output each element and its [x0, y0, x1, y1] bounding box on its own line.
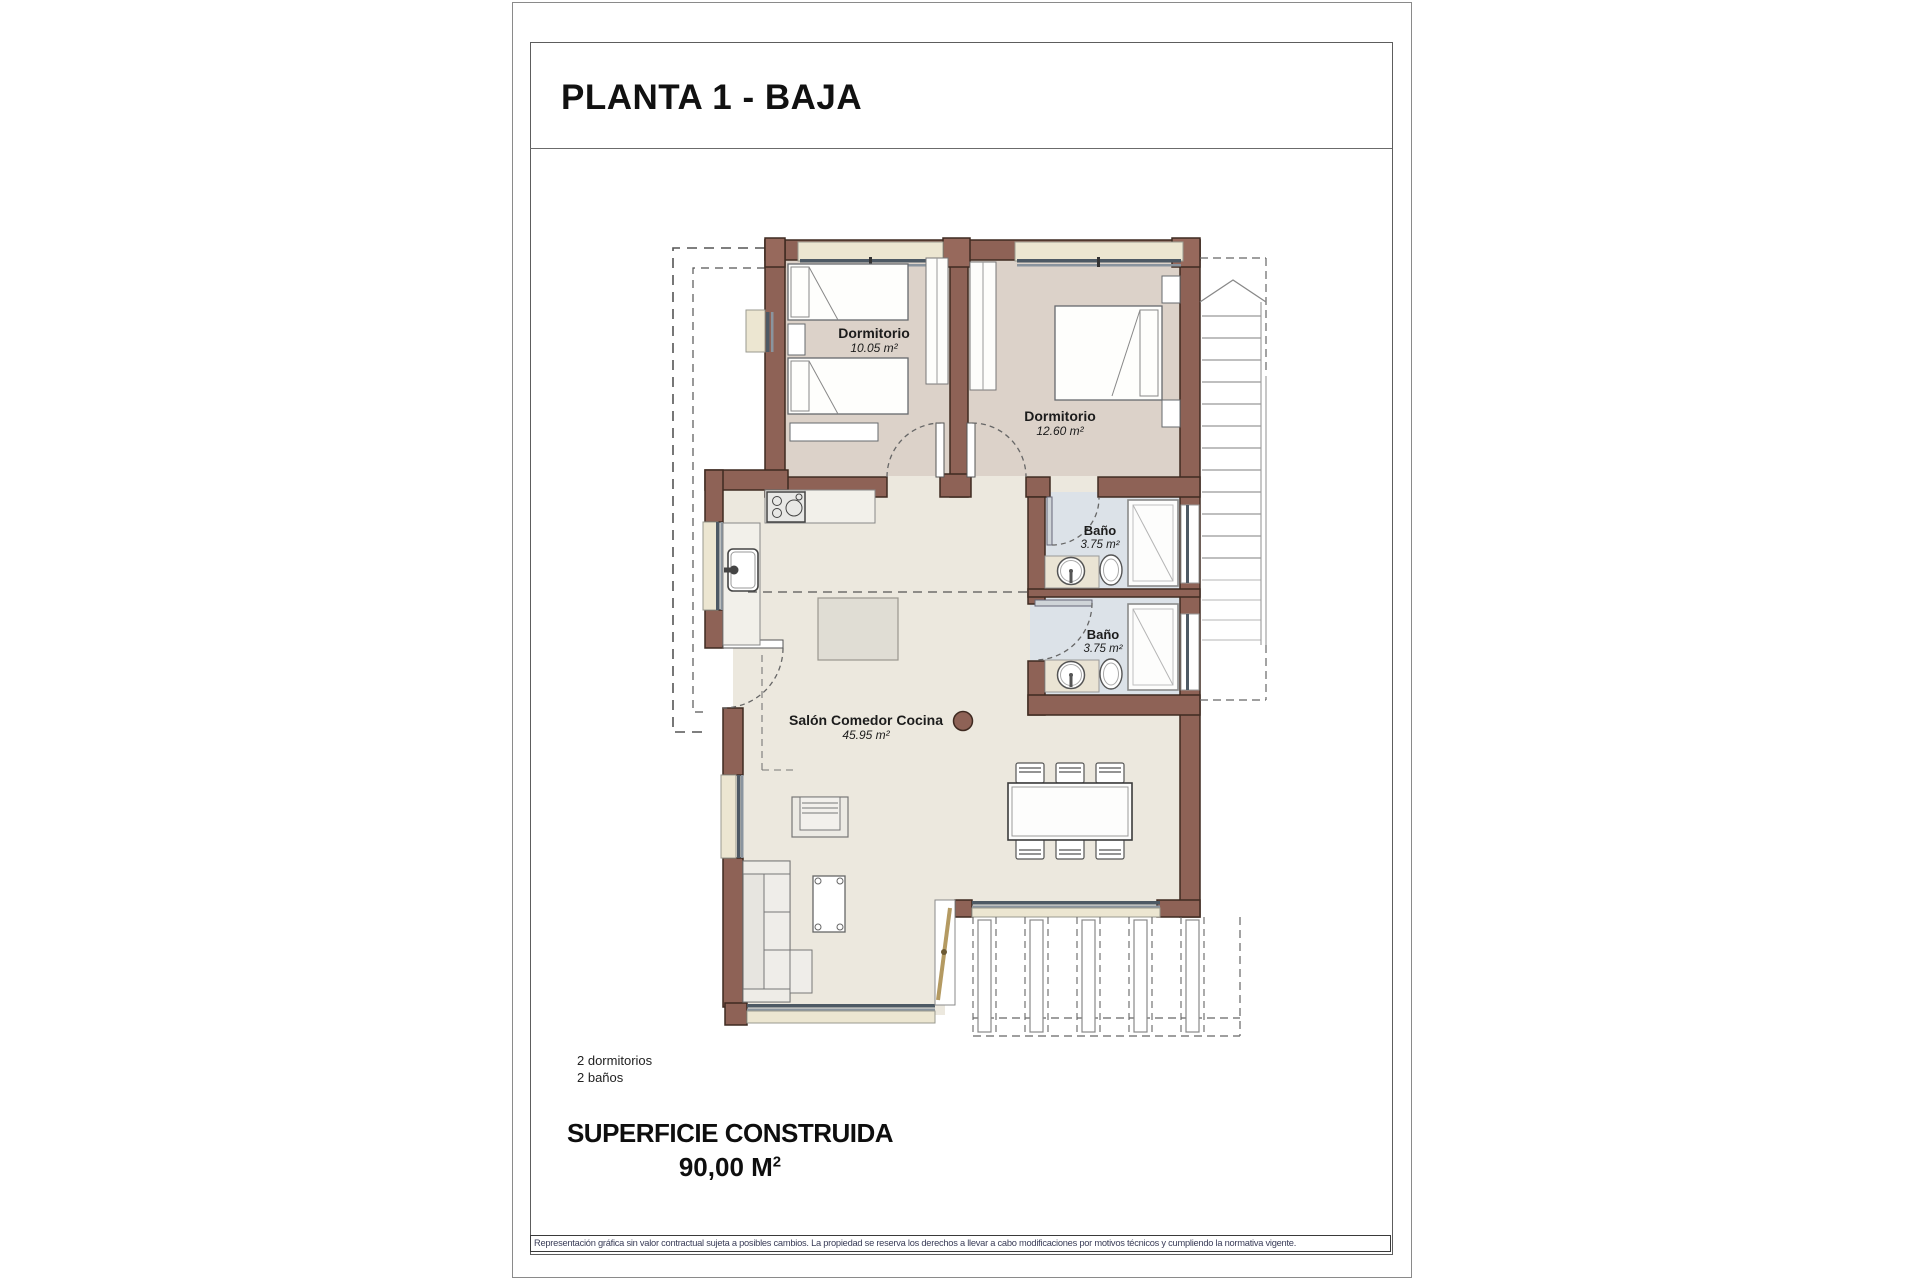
room-label-bano-2: Baño 3.75 m²: [1084, 628, 1123, 655]
room-name: Dormitorio: [1024, 409, 1096, 424]
room-name: Salón Comedor Cocina: [789, 713, 943, 728]
sink-icon: [1058, 558, 1085, 585]
room-area: 3.75 m²: [1084, 643, 1123, 655]
toilet-icon: [1100, 659, 1122, 689]
terrace-side-door: [935, 900, 955, 1005]
built-area-heading: SUPERFICIE CONSTRUIDA: [562, 1118, 898, 1149]
room-name: Baño: [1084, 628, 1123, 642]
terrace-sliding-door: [972, 901, 1160, 917]
double-bed: [1055, 306, 1162, 400]
room-label-dormitorio-2: Dormitorio 12.60 m²: [1024, 409, 1096, 437]
room-label-bano-1: Baño 3.75 m²: [1081, 524, 1120, 551]
program-summary: 2 dormitorios 2 baños: [577, 1052, 652, 1086]
single-bed: [788, 264, 908, 320]
room-label-salon: Salón Comedor Cocina 45.95 m²: [789, 713, 943, 741]
summary-bedrooms: 2 dormitorios: [577, 1052, 652, 1069]
sink-icon: [1058, 662, 1085, 689]
dining-set: [1008, 763, 1132, 859]
room-area: 12.60 m²: [1024, 425, 1096, 438]
bench: [790, 423, 878, 441]
kitchen-island: [818, 598, 898, 660]
plan-sheet: PLANTA 1 - BAJA: [0, 0, 1920, 1280]
room-label-dormitorio-1: Dormitorio 10.05 m²: [838, 326, 910, 354]
living-left-window: [721, 775, 744, 858]
built-area-value: 90,00 M2: [562, 1152, 898, 1183]
built-area-block: SUPERFICIE CONSTRUIDA 90,00 M2: [562, 1118, 898, 1183]
disclaimer-box: Representación gráfica sin valor contrac…: [530, 1235, 1391, 1252]
room-area: 3.75 m²: [1081, 539, 1120, 551]
dining-table: [1008, 783, 1132, 840]
cooktop-icon: [767, 492, 805, 522]
living-bottom-window: [747, 1004, 935, 1023]
single-bed: [788, 358, 908, 414]
shower-icon: [1128, 604, 1178, 690]
bath1-window: [1181, 505, 1199, 583]
bath2-window: [1181, 614, 1199, 690]
room-name: Dormitorio: [838, 326, 910, 341]
summary-bathrooms: 2 baños: [577, 1069, 652, 1086]
room-area: 45.95 m²: [789, 729, 943, 742]
bedroom1-left-window: [746, 310, 774, 352]
nightstand: [1162, 400, 1180, 427]
room-name: Baño: [1081, 524, 1120, 538]
external-staircase: [1200, 258, 1266, 700]
structural-column: [954, 712, 973, 731]
coffee-table: [813, 876, 845, 932]
kitchen-sink-icon: [724, 549, 758, 591]
toilet-icon: [1100, 555, 1122, 585]
sideboard: [792, 797, 848, 837]
nightstand: [788, 324, 805, 355]
porch-pergola: [973, 917, 1240, 1036]
nightstand: [1162, 276, 1180, 303]
shower-icon: [1128, 500, 1178, 586]
floor-plan-drawing: [0, 0, 1920, 1280]
room-area: 10.05 m²: [838, 342, 910, 355]
